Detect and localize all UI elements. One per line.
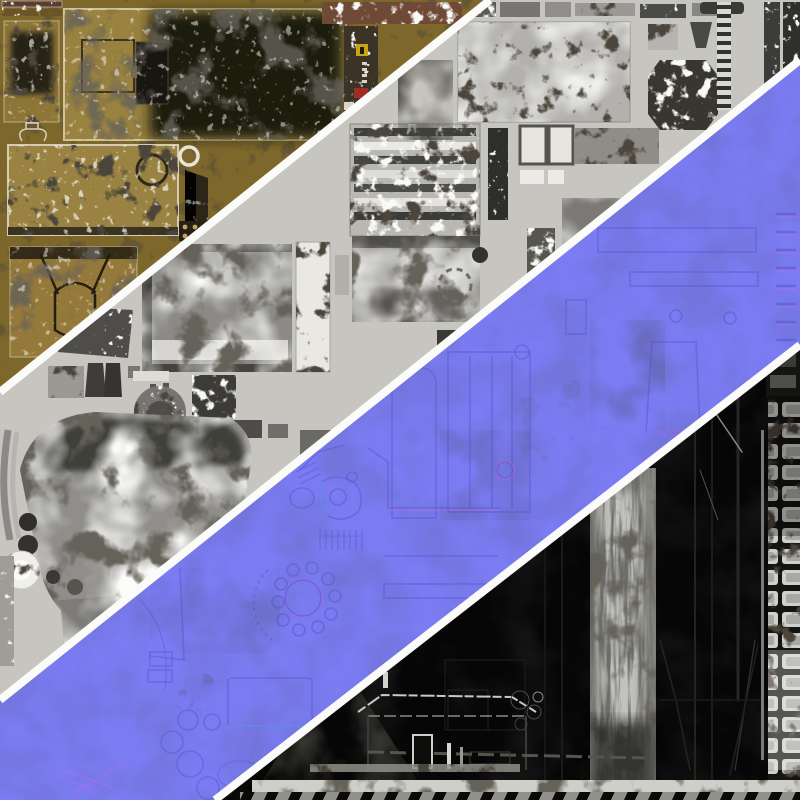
gray-striped-column [717, 2, 731, 110]
brown-big-panel [64, 9, 346, 140]
gray-bright-panel [458, 22, 630, 122]
black-bright-column [590, 468, 656, 800]
brown-row2-panel [8, 145, 178, 235]
texture-atlas-composite [0, 0, 800, 800]
gray-octagon-piece [648, 60, 718, 130]
brown-tall-panel [4, 21, 59, 122]
brown-top-mini-strips [2, 1, 62, 16]
gray-speckled-square [192, 375, 236, 419]
texture-atlas-canvas [0, 0, 800, 800]
gray-ladder-panel [350, 124, 480, 236]
